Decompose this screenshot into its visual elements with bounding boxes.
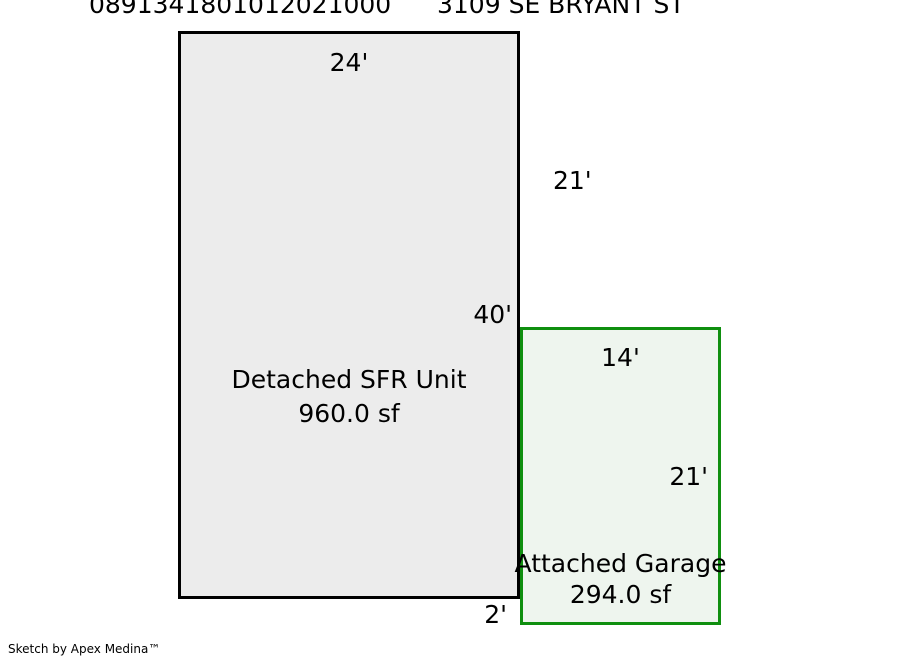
dimension-garage-top: 14' bbox=[520, 344, 721, 371]
main-unit-label: Detached SFR Unit bbox=[178, 366, 520, 393]
parcel-id: 0891341801012021000 bbox=[89, 0, 391, 17]
dimension-main-top: 24' bbox=[178, 49, 520, 76]
dimension-main-right-upper: 21' bbox=[553, 167, 592, 194]
sketch-credit: Sketch by Apex Medina™ bbox=[8, 642, 160, 656]
property-address: 3109 SE BRYANT ST bbox=[437, 0, 685, 17]
main-unit-area: 960.0 sf bbox=[178, 400, 520, 427]
dimension-garage-right: 21' bbox=[600, 463, 708, 490]
garage-area: 294.0 sf bbox=[520, 581, 721, 608]
dimension-main-bottom-offset: 2' bbox=[420, 601, 507, 628]
garage-label: Attached Garage bbox=[497, 550, 744, 577]
property-sketch-canvas: 0891341801012021000 3109 SE BRYANT ST 24… bbox=[0, 0, 900, 661]
dimension-main-right-lower: 40' bbox=[380, 301, 512, 328]
